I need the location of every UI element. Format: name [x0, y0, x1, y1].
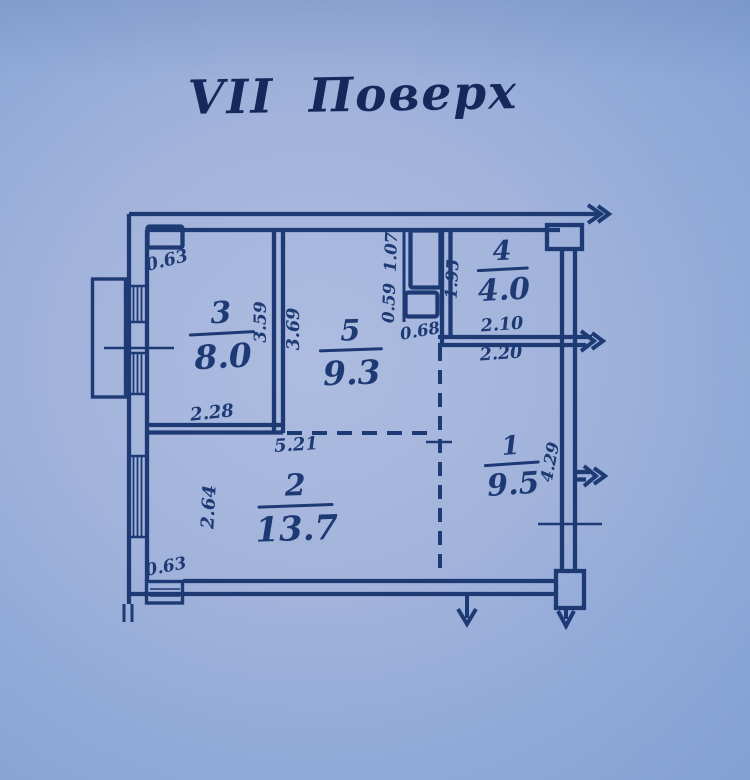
vent-duct-tall [411, 231, 441, 288]
room-1-label: 1 9.5 [482, 431, 543, 502]
arrow-down-bottom-left-icon [458, 594, 476, 624]
room-number: 4 [475, 236, 529, 266]
dimension-shaft-upper: 1.07 [381, 232, 401, 273]
room-number: 5 [318, 315, 383, 346]
right-wall-protrusion-lower [575, 472, 590, 480]
window-left-lower [129, 456, 147, 537]
room-3-label: 3 8.0 [187, 297, 257, 375]
interior-wall-room3-room5 [274, 230, 283, 433]
arrow-down-bottom-right-icon [558, 608, 574, 626]
vent-duct-small [406, 293, 438, 317]
floor-plan-content: VII Поверх [0, 0, 750, 780]
dimension-room2-left: 2.64 [197, 485, 220, 530]
room-area: 9.3 [319, 356, 384, 391]
window-left-middle [129, 353, 147, 394]
dimension-room4-left: 1.95 [441, 258, 462, 299]
outer-wall-bottom [129, 581, 556, 594]
dimension-room2-top: 5.21 [273, 433, 318, 457]
room-number: 2 [253, 470, 337, 503]
dimension-room4-bottom-outer: 2.20 [479, 343, 523, 366]
dimension-room4-bottom-inner: 2.10 [480, 314, 524, 337]
floor-plan-photo: VII Поверх [0, 0, 750, 780]
window-left-upper [129, 286, 147, 322]
column-bottom-right [556, 571, 584, 608]
room-area: 13.7 [255, 511, 339, 548]
outer-wall-right [562, 247, 575, 571]
balcony-outline [93, 279, 126, 397]
arrow-right-lower-icon [584, 466, 605, 486]
room-area: 8.0 [189, 338, 257, 374]
outer-wall-left [129, 214, 147, 604]
room-number: 1 [482, 431, 540, 461]
room-area: 9.5 [484, 469, 542, 503]
room-2-label: 2 13.7 [253, 470, 338, 548]
dimension-room5-left: 3.69 [284, 308, 304, 351]
arrow-right-middle-icon [581, 331, 603, 351]
outer-wall-top [129, 214, 600, 230]
left-wall-stubs [124, 604, 132, 622]
room-4-label: 4 4.0 [475, 236, 531, 307]
dimension-shaft-lower: 0.59 [379, 283, 399, 324]
room-5-label: 5 9.3 [318, 315, 385, 391]
room-number: 3 [187, 297, 254, 330]
dimension-room3-right: 3.59 [251, 301, 271, 342]
interior-wall-room3-bottom [147, 425, 283, 433]
room-area: 4.0 [477, 275, 531, 308]
